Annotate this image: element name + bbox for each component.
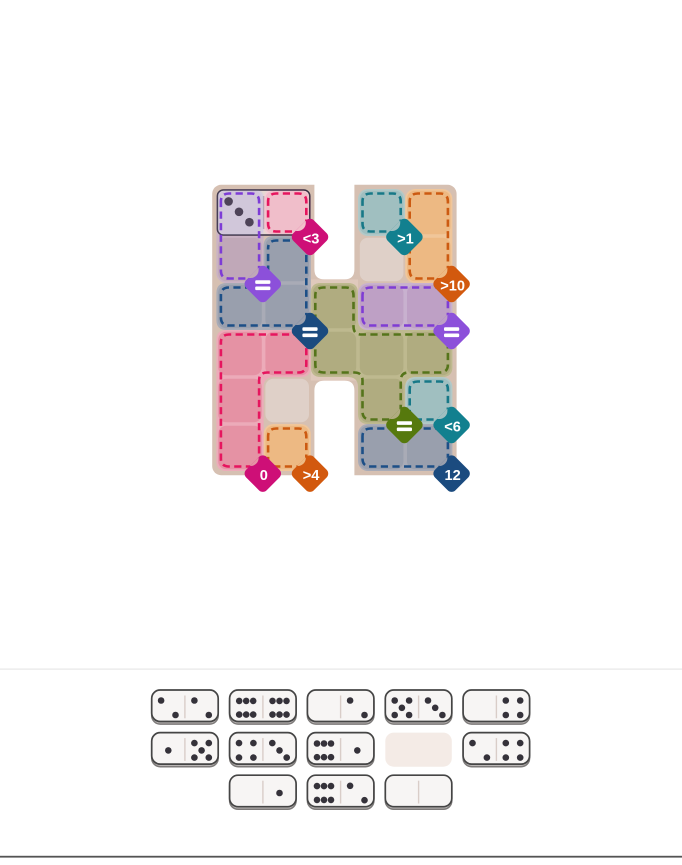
svg-text:<6: <6	[444, 419, 461, 435]
svg-text:>4: >4	[303, 468, 321, 484]
svg-text:>10: >10	[440, 278, 465, 294]
svg-text:>1: >1	[397, 231, 414, 247]
svg-text:0: 0	[260, 468, 268, 484]
svg-text:<3: <3	[303, 231, 320, 247]
svg-text:12: 12	[444, 468, 460, 484]
